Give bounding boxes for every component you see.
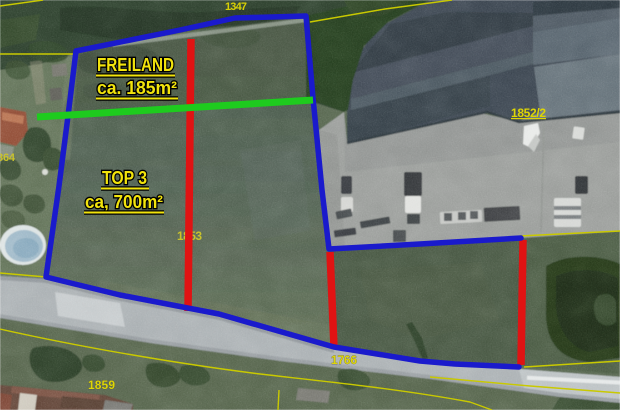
svg-text:864: 864 xyxy=(0,152,16,164)
svg-text:1852/2: 1852/2 xyxy=(511,106,546,120)
svg-text:ca. 185m²: ca. 185m² xyxy=(97,78,177,98)
svg-text:1347: 1347 xyxy=(225,1,247,13)
svg-text:1766: 1766 xyxy=(331,353,357,367)
svg-text:ca, 700m²: ca, 700m² xyxy=(85,192,163,212)
svg-text:FREILAND: FREILAND xyxy=(97,55,174,75)
svg-text:1859: 1859 xyxy=(88,378,115,392)
svg-text:TOP 3: TOP 3 xyxy=(102,168,147,188)
